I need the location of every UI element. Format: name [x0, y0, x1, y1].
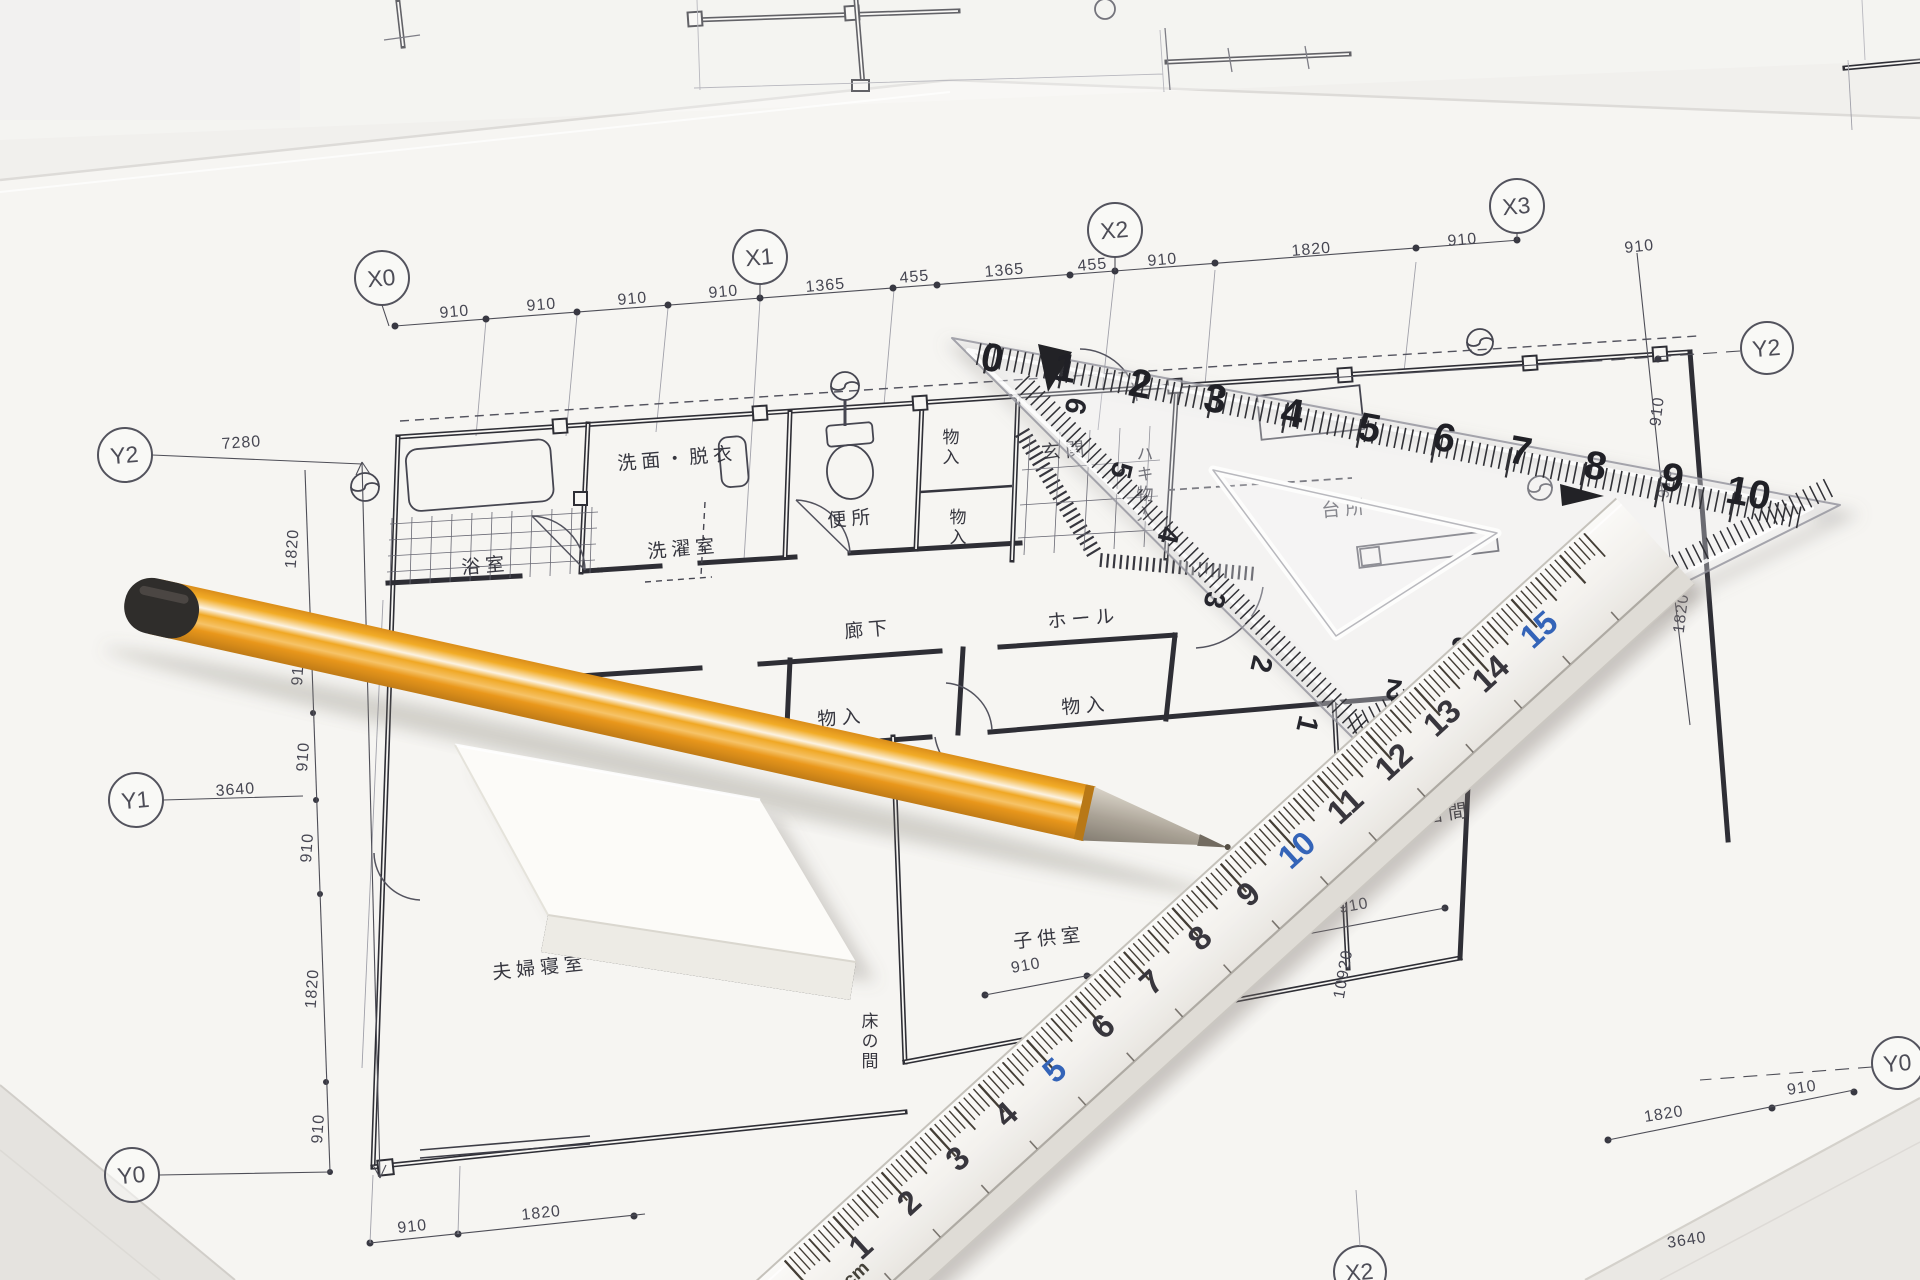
photo-canvas: X0 X1 X2 X3 Y2 Y1 Y0 Y2 Y0 X2: [0, 0, 1920, 1280]
blueprint-photo: X0 X1 X2 X3 Y2 Y1 Y0 Y2 Y0 X2: [0, 0, 1920, 1280]
lighting: [0, 0, 1920, 1280]
